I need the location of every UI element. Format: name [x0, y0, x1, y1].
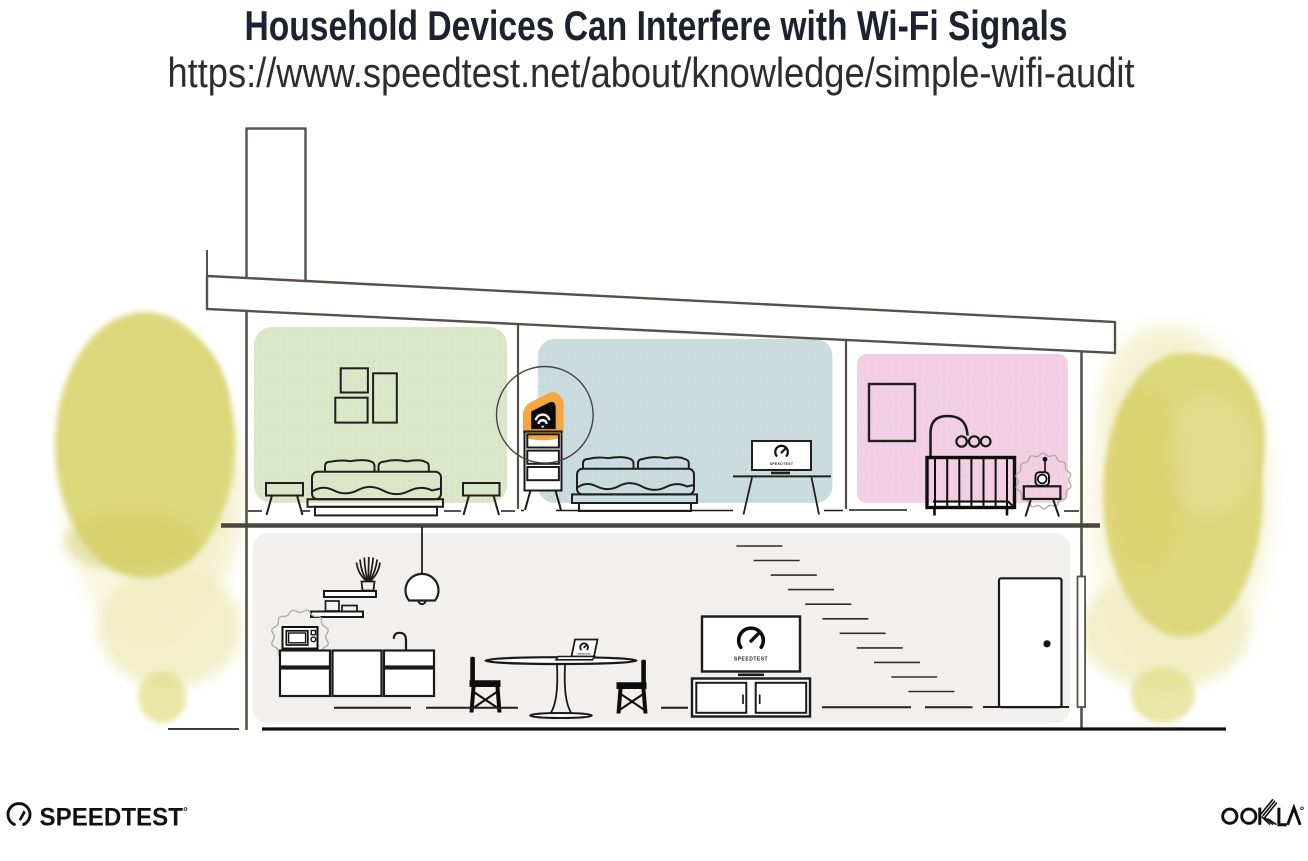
svg-text:https://www.speedtest.net/abou: https://www.speedtest.net/about/knowledg… [168, 49, 1135, 96]
svg-text:SPEEDTEST: SPEEDTEST [770, 462, 794, 466]
svg-text:SPEEDTEST: SPEEDTEST [734, 657, 768, 663]
svg-text:Household Devices Can Interfer: Household Devices Can Interfere with Wi-… [245, 2, 1068, 49]
svg-text:SPEEDTEST: SPEEDTEST [40, 804, 184, 832]
svg-text:SPEEDTEST: SPEEDTEST [577, 654, 591, 656]
